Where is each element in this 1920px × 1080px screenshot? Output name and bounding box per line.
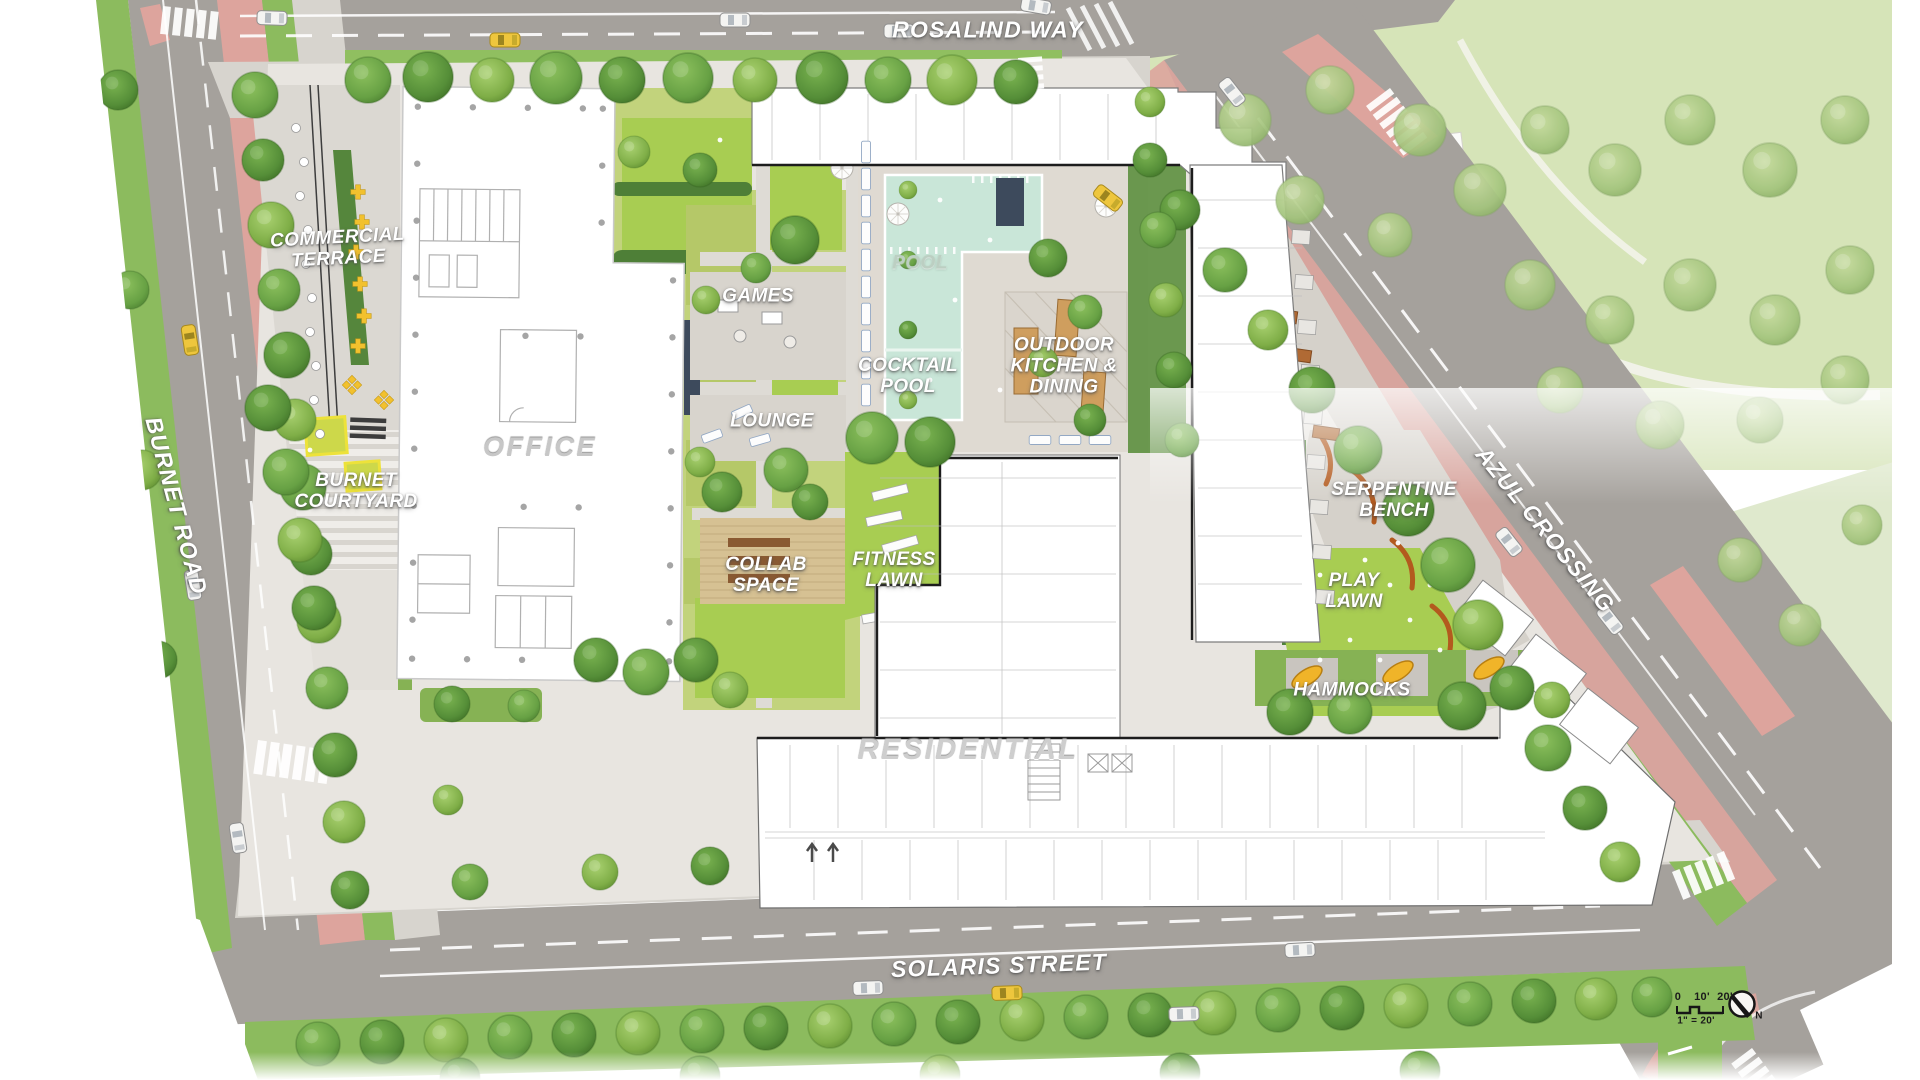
tree (258, 269, 300, 311)
tree (1000, 997, 1044, 1041)
tree (680, 1009, 724, 1053)
tree (899, 251, 917, 269)
tree (1665, 95, 1715, 145)
tree (331, 871, 369, 909)
tree (313, 733, 357, 777)
tree (1219, 94, 1271, 146)
tree (1276, 176, 1324, 224)
tree (1421, 538, 1475, 592)
cafe-table (304, 226, 313, 235)
tree (1534, 682, 1570, 718)
lounger (862, 330, 871, 352)
car (1169, 1006, 1199, 1021)
tree (865, 57, 911, 103)
tree (1438, 682, 1486, 730)
collab-deck (700, 518, 846, 604)
lounger (862, 303, 871, 325)
tree (1074, 404, 1106, 436)
tree (1320, 986, 1364, 1030)
tree (846, 412, 898, 464)
tree (1743, 143, 1797, 197)
outdoor-kitchen-dining (1005, 292, 1127, 425)
courtyard-planter (345, 461, 381, 491)
cafe-table (310, 396, 319, 405)
car (257, 10, 287, 25)
tree (927, 55, 977, 105)
tree (674, 638, 718, 682)
tree (994, 60, 1038, 104)
tree (1248, 310, 1288, 350)
tree (530, 52, 582, 104)
tree (1328, 690, 1372, 734)
tree (1068, 295, 1102, 329)
tree (242, 139, 284, 181)
tree (599, 57, 645, 103)
cafe-table (312, 362, 321, 371)
tree (1589, 144, 1641, 196)
tree (1448, 982, 1492, 1026)
tree (1490, 666, 1534, 710)
taxi (992, 985, 1022, 1000)
tree (323, 801, 365, 843)
tree (1779, 604, 1821, 646)
tree (1453, 600, 1503, 650)
tree (702, 472, 742, 512)
tree (712, 672, 748, 708)
tree (470, 58, 514, 102)
cafe-table (296, 192, 305, 201)
courtyard-benches (350, 417, 387, 439)
lounger (1059, 436, 1081, 445)
tree (905, 417, 955, 467)
tree (685, 447, 715, 477)
tree (899, 181, 917, 199)
tree (1750, 295, 1800, 345)
outdoor-theater-wall (996, 178, 1024, 226)
lounger (1089, 436, 1111, 445)
tree (1203, 248, 1247, 292)
tree (1512, 979, 1556, 1023)
tree (403, 52, 453, 102)
lounger (1029, 436, 1051, 445)
tree (1064, 995, 1108, 1039)
tree (1384, 984, 1428, 1028)
tree (683, 153, 717, 187)
tree (771, 216, 819, 264)
tree (508, 690, 540, 722)
tree (691, 847, 729, 885)
car (884, 24, 914, 38)
north-arrow (1730, 992, 1755, 1019)
tree (872, 1002, 916, 1046)
tree (1256, 988, 1300, 1032)
tree (306, 667, 348, 709)
tree (552, 1013, 596, 1057)
tree (1306, 66, 1354, 114)
tree (582, 854, 618, 890)
tree (1525, 725, 1571, 771)
tree (1521, 106, 1569, 154)
tree (616, 1011, 660, 1055)
cafe-table (292, 124, 301, 133)
site-plan-canvas (0, 0, 1920, 1080)
tree (263, 449, 309, 495)
tree (1718, 538, 1762, 582)
cafe-table (302, 260, 311, 269)
car (720, 13, 750, 27)
tree (232, 72, 278, 118)
tree (1842, 505, 1882, 545)
site-plan: ROSALIND WAY BURNET ROAD SOLARIS STREET … (0, 0, 1920, 1080)
tree (899, 391, 917, 409)
tree (1826, 246, 1874, 294)
tree (264, 332, 310, 378)
tree (741, 253, 771, 283)
tree (1028, 347, 1058, 377)
tree (692, 286, 720, 314)
tree (278, 518, 322, 562)
tree (618, 136, 650, 168)
tree (1664, 259, 1716, 311)
tree (1454, 164, 1506, 216)
tree (1267, 689, 1313, 735)
tree (574, 638, 618, 682)
tree (292, 586, 336, 630)
tree (796, 52, 848, 104)
tree (452, 864, 488, 900)
tree (1394, 104, 1446, 156)
tree (663, 53, 713, 103)
tree (1133, 143, 1167, 177)
tree (1821, 96, 1869, 144)
lounger (862, 168, 871, 190)
tree (1135, 87, 1165, 117)
cafe-table (316, 430, 325, 439)
tree (245, 385, 291, 431)
tree (1586, 296, 1634, 344)
tree (1505, 260, 1555, 310)
car (1285, 942, 1316, 958)
tree (248, 202, 294, 248)
tree (733, 58, 777, 102)
tree (899, 321, 917, 339)
tree (792, 484, 828, 520)
tree (434, 686, 470, 722)
cafe-table (308, 294, 317, 303)
tree (1156, 352, 1192, 388)
lounger (862, 141, 871, 163)
tree (345, 57, 391, 103)
taxi (490, 33, 520, 47)
tree (1600, 842, 1640, 882)
tree (1575, 978, 1617, 1020)
lounger (862, 357, 871, 379)
tree (1368, 213, 1412, 257)
cafe-table (300, 158, 309, 167)
tree (1563, 786, 1607, 830)
tree (623, 649, 669, 695)
tree (1632, 977, 1672, 1017)
tree (1029, 239, 1067, 277)
lounger (862, 249, 871, 271)
lounger (862, 222, 871, 244)
tree (1128, 993, 1172, 1037)
cafe-table (306, 328, 315, 337)
tree (936, 1000, 980, 1044)
lounger (862, 276, 871, 298)
car (853, 980, 883, 995)
tree (744, 1006, 788, 1050)
tree (433, 785, 463, 815)
lounger (862, 384, 871, 406)
lounger (862, 195, 871, 217)
tree (1140, 212, 1176, 248)
tree (98, 70, 138, 110)
tree (764, 448, 808, 492)
tree (808, 1004, 852, 1048)
tree (1149, 283, 1183, 317)
